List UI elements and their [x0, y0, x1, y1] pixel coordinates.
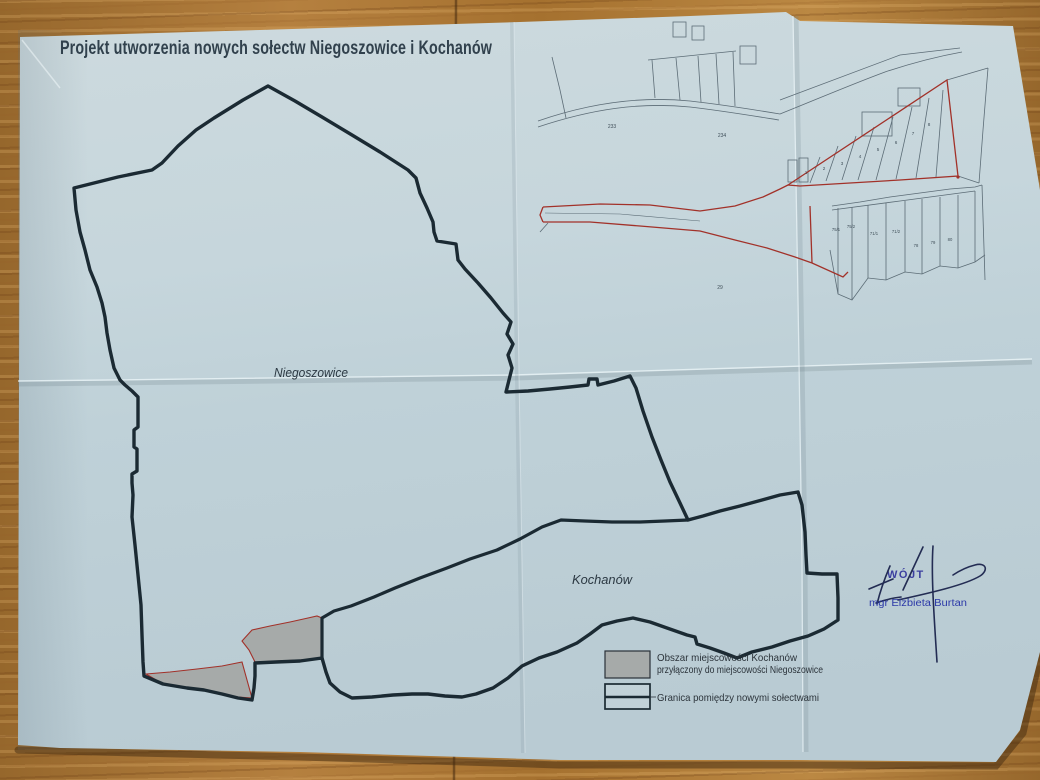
- paper-left-shading: [18, 30, 88, 750]
- parcel-number: 78: [914, 243, 919, 248]
- photo-of-map-document: Projekt utworzenia nowych sołectw Niegos…: [0, 0, 1040, 780]
- signer-name-text: mgr Elżbieta Burtan: [869, 598, 967, 609]
- paper-surface: [18, 12, 1040, 762]
- legend-boundary-text: Granica pomiędzy nowymi sołectwami: [657, 692, 819, 704]
- region-label-kochanow: Kochanów: [572, 572, 634, 587]
- parcel-number: 3: [841, 161, 844, 166]
- parcel-number: 4: [859, 154, 862, 159]
- parcel-number: 233: [608, 124, 617, 130]
- parcel-number: 29: [717, 285, 723, 291]
- paper-sheet: [18, 12, 1040, 762]
- parcel-number: 5: [877, 147, 880, 152]
- parcel-number: 2: [823, 166, 826, 171]
- document-canvas: Projekt utworzenia nowych sołectw Niegos…: [0, 0, 1040, 780]
- page-title: Projekt utworzenia nowych sołectw Niegos…: [60, 38, 492, 59]
- region-label-niegoszowice: Niegoszowice: [274, 365, 348, 380]
- parcel-number: 8: [928, 122, 931, 127]
- legend-swatch-annexed: [605, 651, 650, 678]
- parcel-number: 79: [931, 240, 936, 245]
- legend-item-annexed-area: Obszar miejscowości Kochanów przyłączony…: [605, 651, 823, 678]
- legend-annexed-text-line2: przyłączony do miejscowości Niegoszowice: [657, 664, 823, 676]
- parcel-number: 1: [805, 170, 808, 175]
- parcel-number: 75/1: [832, 227, 841, 232]
- parcel-number: 234: [718, 133, 727, 139]
- parcel-number: 6: [895, 140, 898, 145]
- parcel-number: 71/1: [870, 231, 879, 236]
- parcel-number: 75/2: [847, 224, 856, 229]
- parcel-number: 71/2: [892, 229, 901, 234]
- legend-annexed-text-line1: Obszar miejscowości Kochanów: [657, 652, 797, 664]
- parcel-number: 80: [948, 237, 953, 242]
- parcel-number: 7: [912, 131, 915, 136]
